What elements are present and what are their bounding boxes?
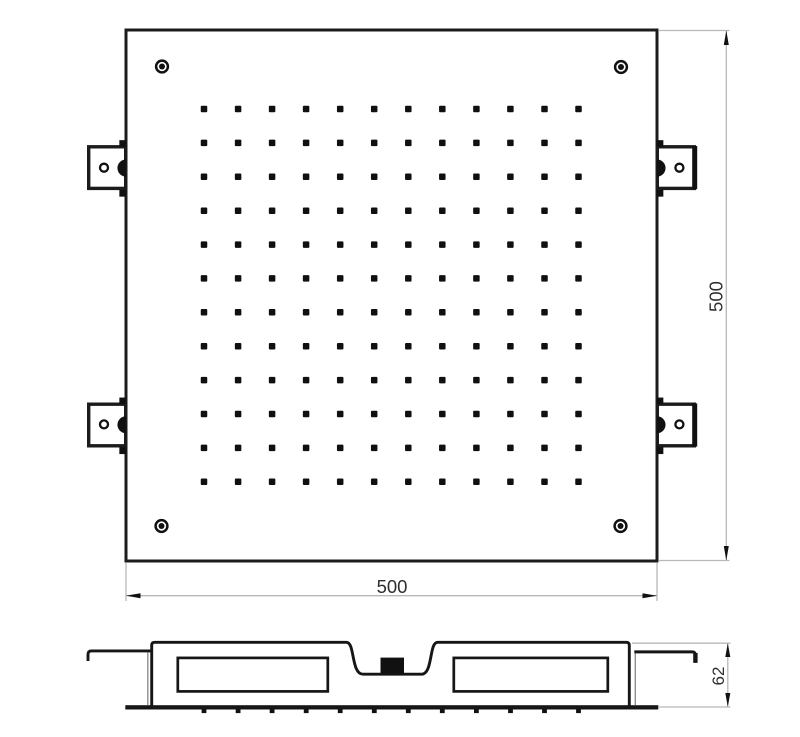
svg-text:62: 62 bbox=[709, 667, 728, 686]
svg-text:500: 500 bbox=[377, 576, 408, 597]
svg-text:500: 500 bbox=[706, 281, 727, 312]
